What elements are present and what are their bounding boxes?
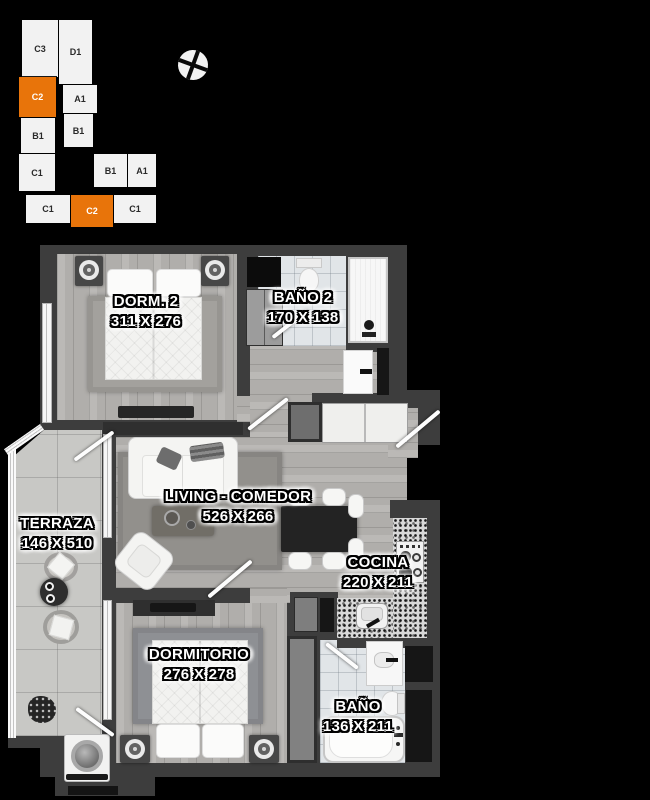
- bano2-side-panel: [377, 348, 389, 395]
- window-dorm2-left: [42, 303, 52, 423]
- dorm-bano-closet: [287, 636, 317, 763]
- washing-machine-drum: [71, 740, 103, 772]
- room-dims: 276 X 278: [149, 665, 249, 685]
- unit-block-b1[interactable]: B1: [64, 114, 93, 147]
- bano-vanity-faucet: [386, 658, 398, 662]
- dorm-pillow: [202, 724, 244, 758]
- compass-icon: [174, 46, 212, 84]
- room-name: DORMITORIO: [149, 645, 249, 665]
- entry-closet-divider: [364, 404, 366, 442]
- shower-valve: [362, 332, 376, 337]
- room-label-cocina: COCINA 220 X 211: [343, 553, 413, 593]
- room-label-living: LIVING - COMEDOR 526 X 266: [165, 487, 311, 527]
- unit-block-b1[interactable]: B1: [94, 154, 127, 187]
- room-dims: 220 X 211: [343, 573, 413, 593]
- stove-knob-row: [400, 545, 420, 548]
- dorm-pillow: [156, 724, 200, 758]
- unit-label: C1: [129, 204, 141, 214]
- floorplan-page: { "palette": { "background": "#000000", …: [0, 0, 650, 800]
- floor-dorm2-doorway: [237, 396, 250, 422]
- unit-block-a1[interactable]: A1: [63, 85, 97, 113]
- room-name: COCINA: [343, 553, 413, 573]
- bano2-shower: [348, 257, 388, 343]
- bano-closet-lower: [406, 690, 432, 762]
- bathtub-knob: [396, 726, 400, 730]
- bathtub-faucet: [394, 733, 403, 737]
- unit-label: A1: [74, 94, 86, 104]
- dorm2-lamp-right: [205, 260, 225, 280]
- bano2-vanity-faucet: [360, 369, 372, 374]
- room-name: DORM. 2: [111, 292, 181, 312]
- terraza-table: [40, 578, 68, 606]
- room-dims: 170 X 138: [267, 308, 338, 328]
- window-living-terraza: [103, 434, 112, 538]
- room-name: TERRAZA: [20, 514, 94, 534]
- cocina-sink-basin: [361, 607, 383, 621]
- unit-label: B1: [32, 131, 44, 141]
- lamp-bulb: [87, 268, 91, 272]
- room-dims: 146 X 510: [20, 534, 94, 554]
- shower-head-icon: [364, 320, 374, 330]
- bathtub-knob: [396, 742, 400, 746]
- pantry-door-panel: [294, 597, 318, 632]
- bano2-toilet-tank: [296, 258, 322, 268]
- unit-block-c1[interactable]: C1: [26, 195, 70, 223]
- bano2-cabinet-divider: [264, 290, 265, 345]
- washing-machine-controls: [66, 774, 108, 780]
- room-label-terraza: TERRAZA 146 X 510: [20, 514, 94, 554]
- dining-chair: [322, 488, 346, 506]
- dining-chair: [348, 494, 364, 518]
- terraza-cup: [45, 582, 54, 591]
- unit-label: B1: [105, 166, 117, 176]
- room-label-bano2: BAÑO 2 170 X 138: [267, 288, 338, 328]
- room-dims: 526 X 266: [165, 507, 311, 527]
- unit-label: D1: [70, 47, 82, 57]
- stove-burner: [412, 553, 421, 562]
- dining-chair: [288, 552, 312, 570]
- terraza-cup: [46, 594, 55, 603]
- wall-kitchen-top-stub: [390, 500, 440, 518]
- dorm2-lamp-left: [79, 260, 99, 280]
- dorm-lamp-right: [254, 739, 274, 759]
- room-name: LIVING - COMEDOR: [165, 487, 311, 507]
- room-dims: 136 X 211: [323, 717, 393, 737]
- terraza-railing: [8, 446, 16, 738]
- window-dorm-terraza: [103, 600, 112, 720]
- unit-block-c1[interactable]: C1: [19, 154, 55, 191]
- unit-block-b1[interactable]: B1: [21, 118, 55, 153]
- floor-dorm-doorway: [250, 588, 287, 604]
- room-name: BAÑO 2: [267, 288, 338, 308]
- dorm-lamp-left: [125, 739, 145, 759]
- bano-toilet-tank: [397, 693, 405, 714]
- terraza-plant: [28, 696, 56, 723]
- lamp-bulb: [262, 747, 266, 751]
- unit-label: B1: [73, 126, 85, 136]
- stove-burner: [413, 568, 422, 577]
- unit-label: C2: [32, 92, 44, 102]
- unit-label: C3: [34, 44, 46, 54]
- room-label-bano: BAÑO 136 X 211: [323, 697, 393, 737]
- dorm-tv: [150, 603, 196, 612]
- wall-closet-top: [312, 393, 440, 403]
- dorm2-console: [103, 422, 243, 435]
- room-label-dormitorio: DORMITORIO 276 X 278: [149, 645, 249, 685]
- pantry-shaft: [320, 598, 334, 632]
- unit-label: C1: [31, 168, 43, 178]
- room-name: BAÑO: [323, 697, 393, 717]
- room-dims: 311 X 276: [111, 312, 181, 332]
- unit-block-d1[interactable]: D1: [59, 20, 92, 84]
- unit-block-c2-highlighted[interactable]: C2: [71, 195, 113, 227]
- lamp-bulb: [213, 268, 217, 272]
- unit-block-c1[interactable]: C1: [114, 195, 156, 223]
- unit-label: C1: [42, 204, 54, 214]
- laundry-recess: [68, 786, 118, 795]
- room-label-dorm2: DORM. 2 311 X 276: [111, 292, 181, 332]
- lamp-bulb: [133, 747, 137, 751]
- unit-block-a1[interactable]: A1: [128, 154, 156, 187]
- unit-block-c2-highlighted[interactable]: C2: [19, 77, 56, 117]
- unit-label: A1: [136, 166, 148, 176]
- unit-label: C2: [86, 206, 98, 216]
- dorm2-tv: [118, 406, 194, 418]
- bano2-shaft: [247, 257, 281, 287]
- unit-block-c3[interactable]: C3: [22, 20, 58, 77]
- shoe-cabinet: [288, 402, 322, 442]
- bano-closet-upper: [405, 646, 433, 682]
